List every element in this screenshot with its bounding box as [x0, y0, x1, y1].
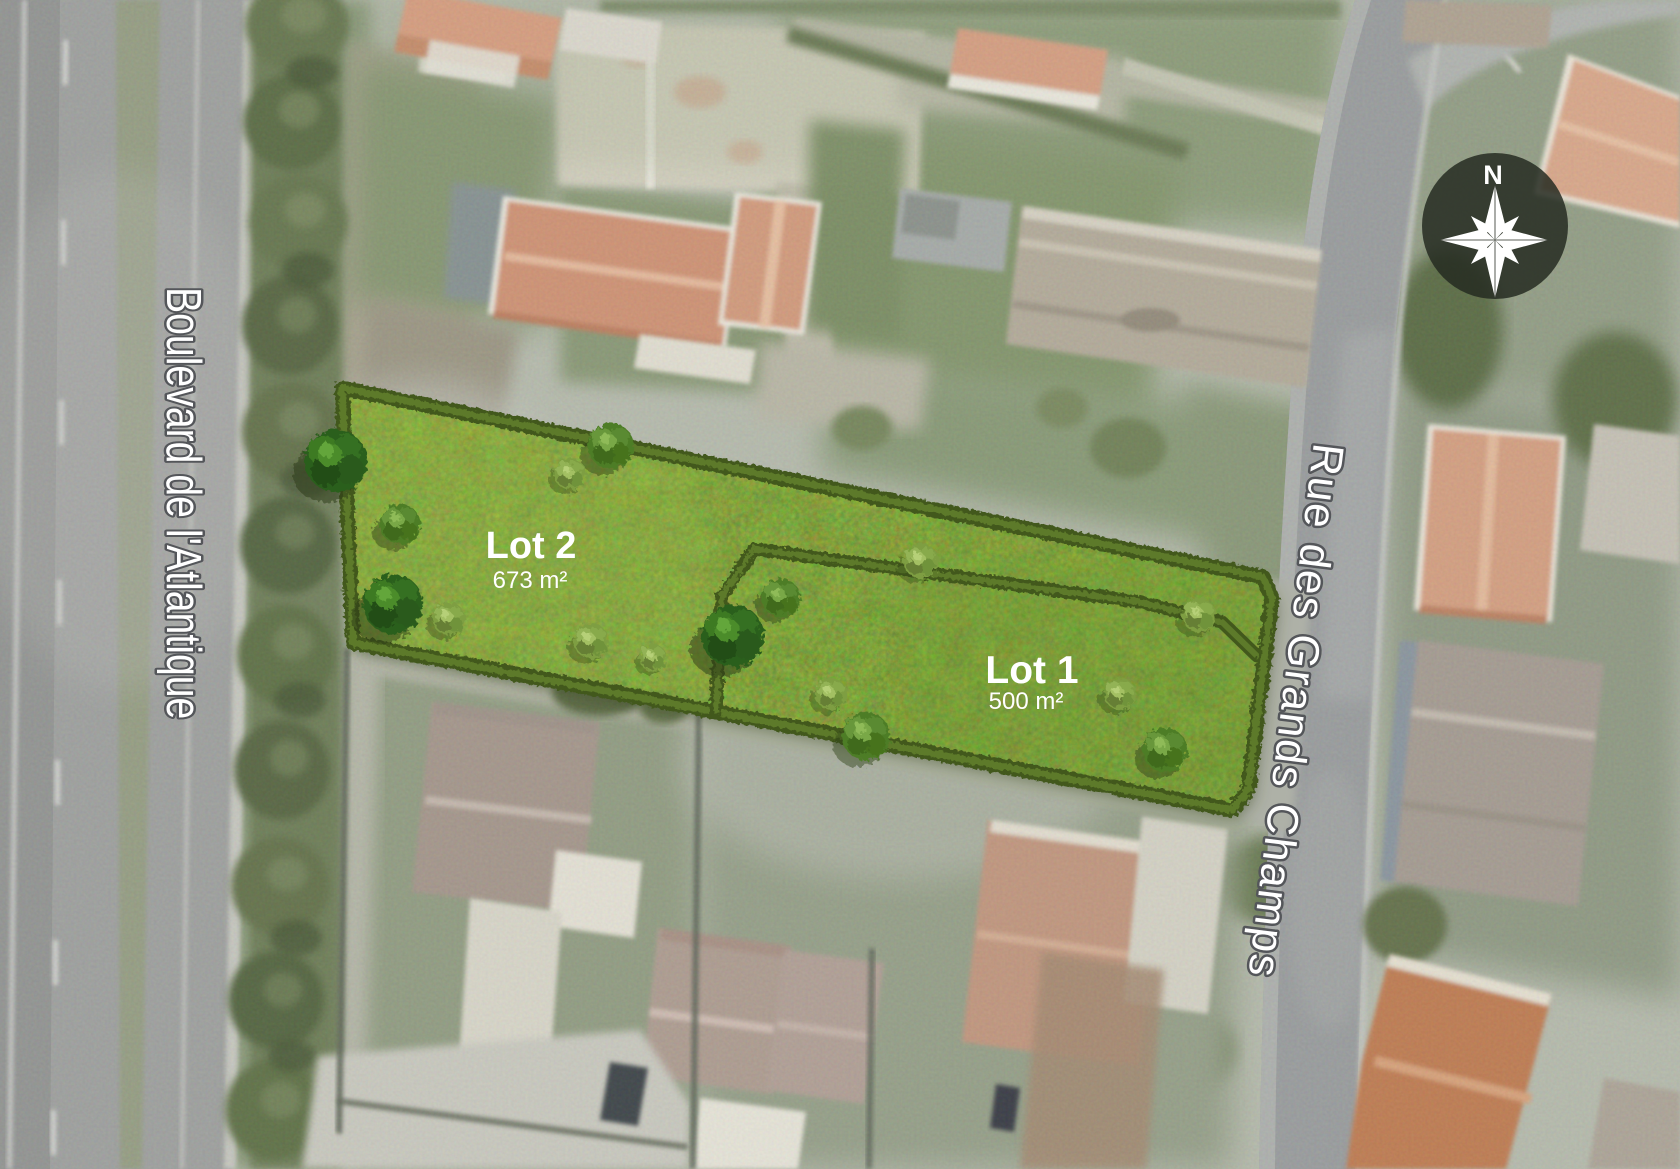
- svg-text:500 m²: 500 m²: [989, 688, 1064, 715]
- svg-text:N: N: [1483, 160, 1503, 190]
- svg-text:673 m²: 673 m²: [493, 567, 568, 594]
- svg-text:Boulevard de l'Atlantique: Boulevard de l'Atlantique: [156, 287, 210, 719]
- svg-text:Lot 1: Lot 1: [985, 649, 1078, 692]
- svg-text:Lot 2: Lot 2: [486, 525, 577, 567]
